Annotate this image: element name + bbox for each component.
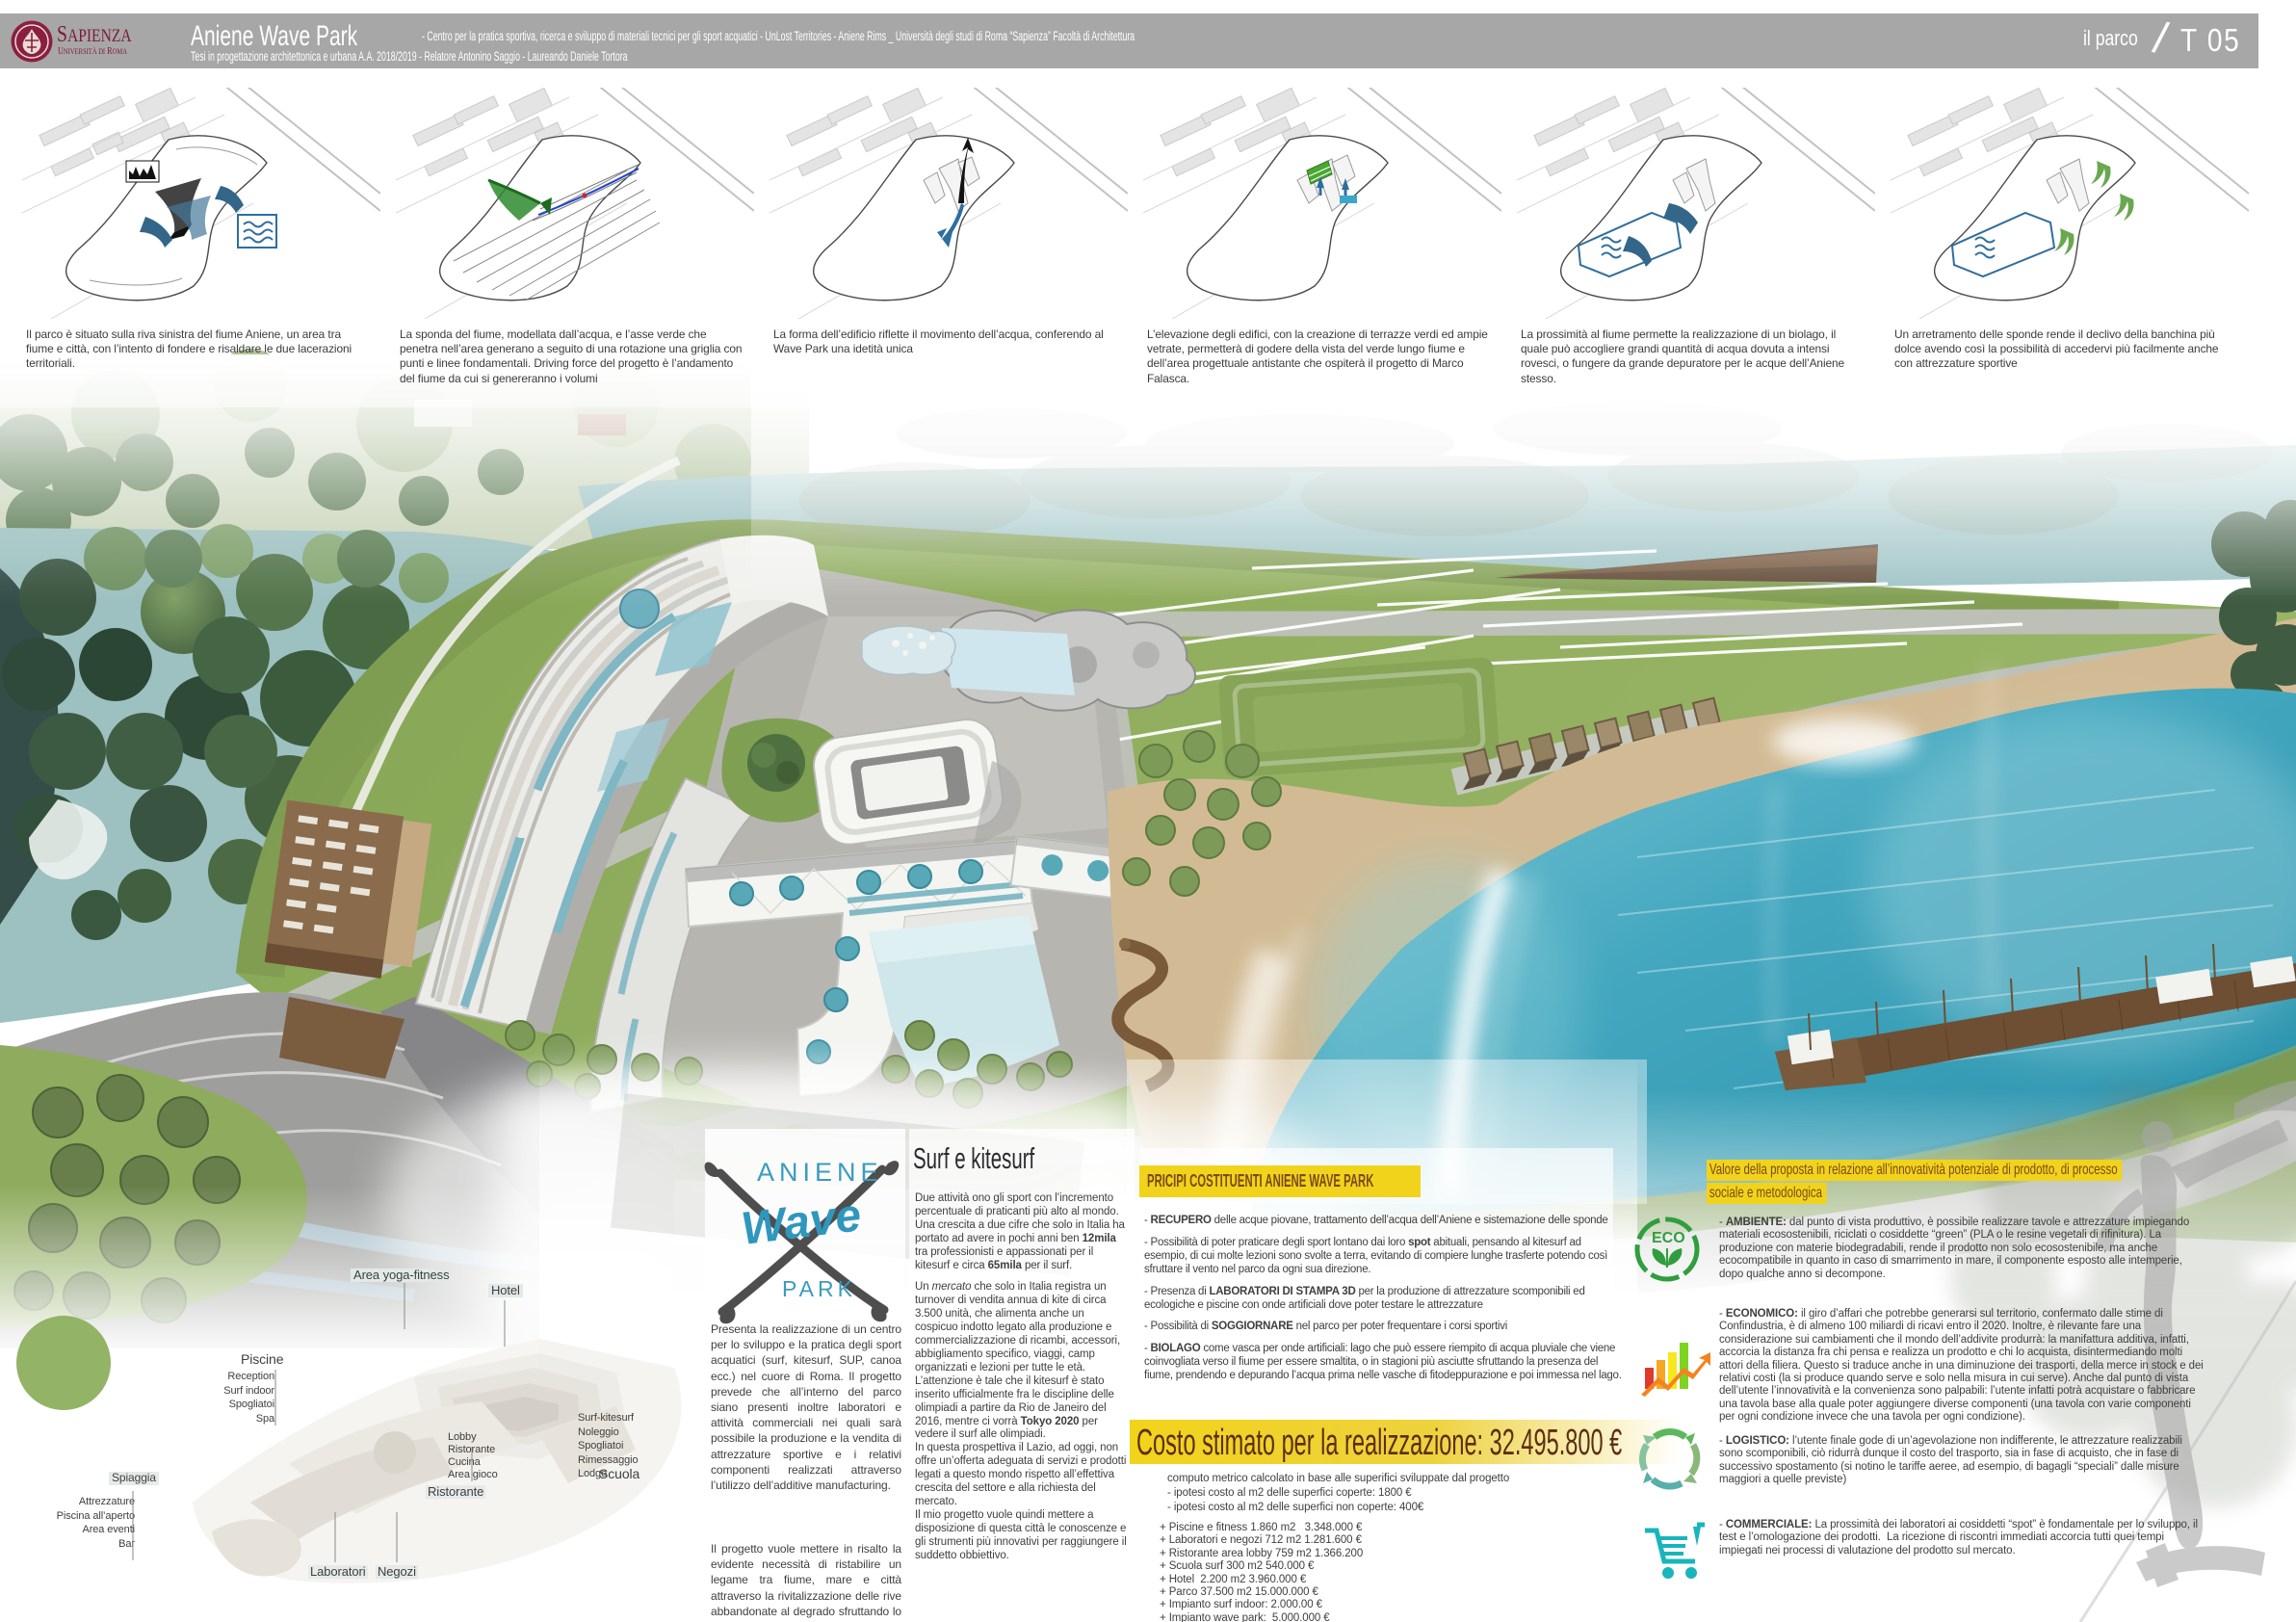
svg-text:ANIENE: ANIENE	[757, 1158, 883, 1187]
svg-text:PARK: PARK	[782, 1276, 856, 1301]
svg-text:ECO: ECO	[1652, 1230, 1685, 1246]
svg-text:Wave: Wave	[739, 1190, 864, 1255]
